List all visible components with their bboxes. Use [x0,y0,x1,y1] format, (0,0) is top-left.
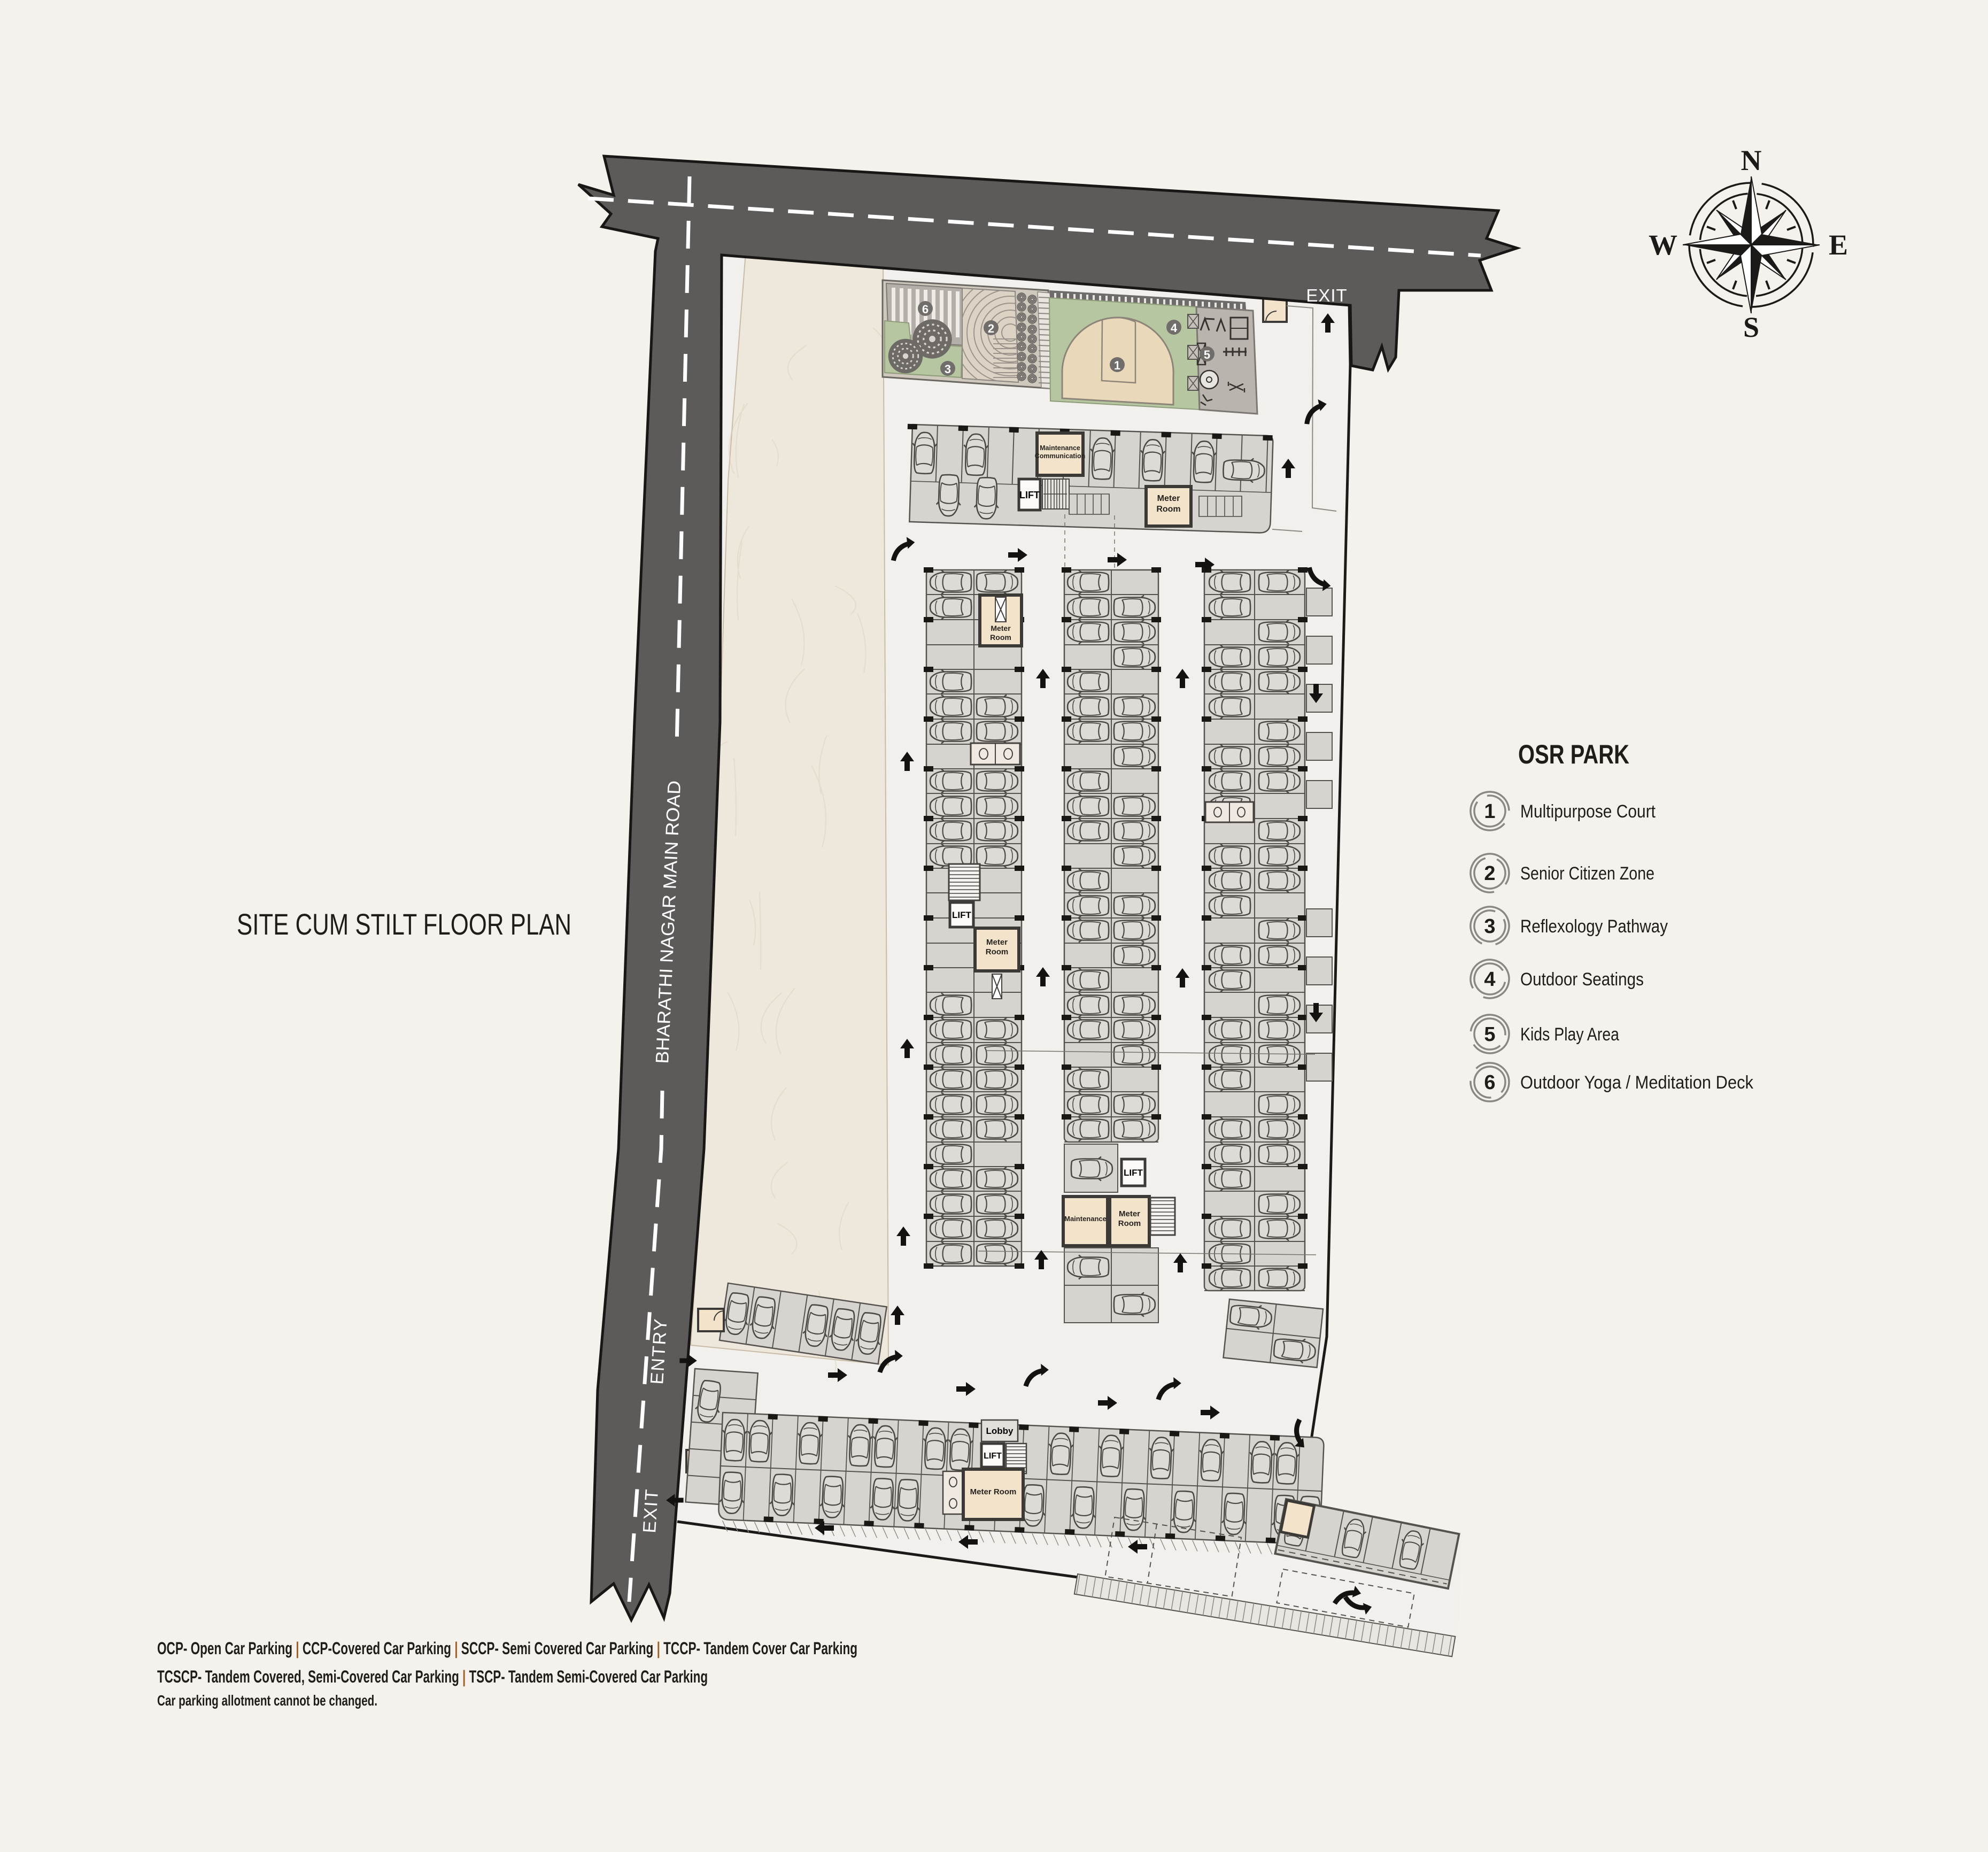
svg-text:Room: Room [990,633,1011,642]
svg-text:4: 4 [1484,968,1495,991]
svg-text:Maintenance: Maintenance [1064,1215,1107,1223]
svg-text:1: 1 [1484,800,1495,823]
svg-text:Meter: Meter [1157,494,1180,503]
svg-text:Room: Room [986,947,1009,956]
svg-text:LIFT: LIFT [1019,490,1040,500]
svg-text:E: E [1829,229,1848,261]
svg-text:OCP- Open Car Parking | CCP-Co: OCP- Open Car Parking | CCP-Covered Car … [157,1639,857,1658]
svg-text:2: 2 [1484,862,1495,885]
svg-text:Senior Citizen Zone: Senior Citizen Zone [1520,863,1654,884]
svg-text:Meter: Meter [1119,1209,1140,1218]
svg-text:LIFT: LIFT [1124,1168,1143,1178]
svg-text:Kids Play Area: Kids Play Area [1520,1024,1619,1045]
svg-text:1: 1 [1114,359,1120,372]
svg-text:EXIT: EXIT [1306,285,1347,305]
svg-text:TCSCP- Tandem Covered, Semi-Co: TCSCP- Tandem Covered, Semi-Covered Car … [157,1667,708,1686]
svg-text:EXIT: EXIT [639,1488,662,1534]
svg-text:Meter Room: Meter Room [970,1487,1017,1496]
svg-text:SITE CUM STILT FLOOR PLAN: SITE CUM STILT FLOOR PLAN [237,907,571,941]
svg-text:3: 3 [1484,915,1495,938]
svg-text:Meter: Meter [991,624,1011,632]
svg-text:OSR PARK: OSR PARK [1518,739,1629,769]
svg-text:4: 4 [1171,321,1178,335]
svg-text:Outdoor Seatings: Outdoor Seatings [1520,969,1644,990]
svg-text:3: 3 [945,362,951,376]
svg-text:N: N [1741,144,1762,176]
svg-text:Maintenance: Maintenance [1040,444,1080,452]
svg-text:Room: Room [1156,505,1180,514]
svg-text:ENTRY: ENTRY [647,1317,671,1385]
svg-text:5: 5 [1484,1023,1495,1046]
svg-text:Car parking allotment cannot b: Car parking allotment cannot be changed. [157,1692,377,1709]
svg-text:6: 6 [922,303,929,316]
svg-text:Reflexology Pathway: Reflexology Pathway [1520,916,1668,937]
svg-text:2: 2 [988,322,994,335]
svg-text:LIFT: LIFT [984,1452,1002,1461]
svg-text:Communication: Communication [1035,452,1085,460]
svg-text:5: 5 [1204,348,1210,361]
svg-text:S: S [1743,311,1759,343]
svg-text:6: 6 [1484,1071,1495,1094]
svg-text:Multipurpose Court: Multipurpose Court [1520,801,1656,822]
svg-text:LIFT: LIFT [952,910,971,920]
svg-text:W: W [1649,229,1677,261]
svg-text:Room: Room [1118,1219,1141,1228]
svg-text:Lobby: Lobby [986,1426,1014,1436]
svg-text:Meter: Meter [986,938,1008,947]
svg-text:Outdoor Yoga / Meditation Deck: Outdoor Yoga / Meditation Deck [1520,1072,1754,1093]
